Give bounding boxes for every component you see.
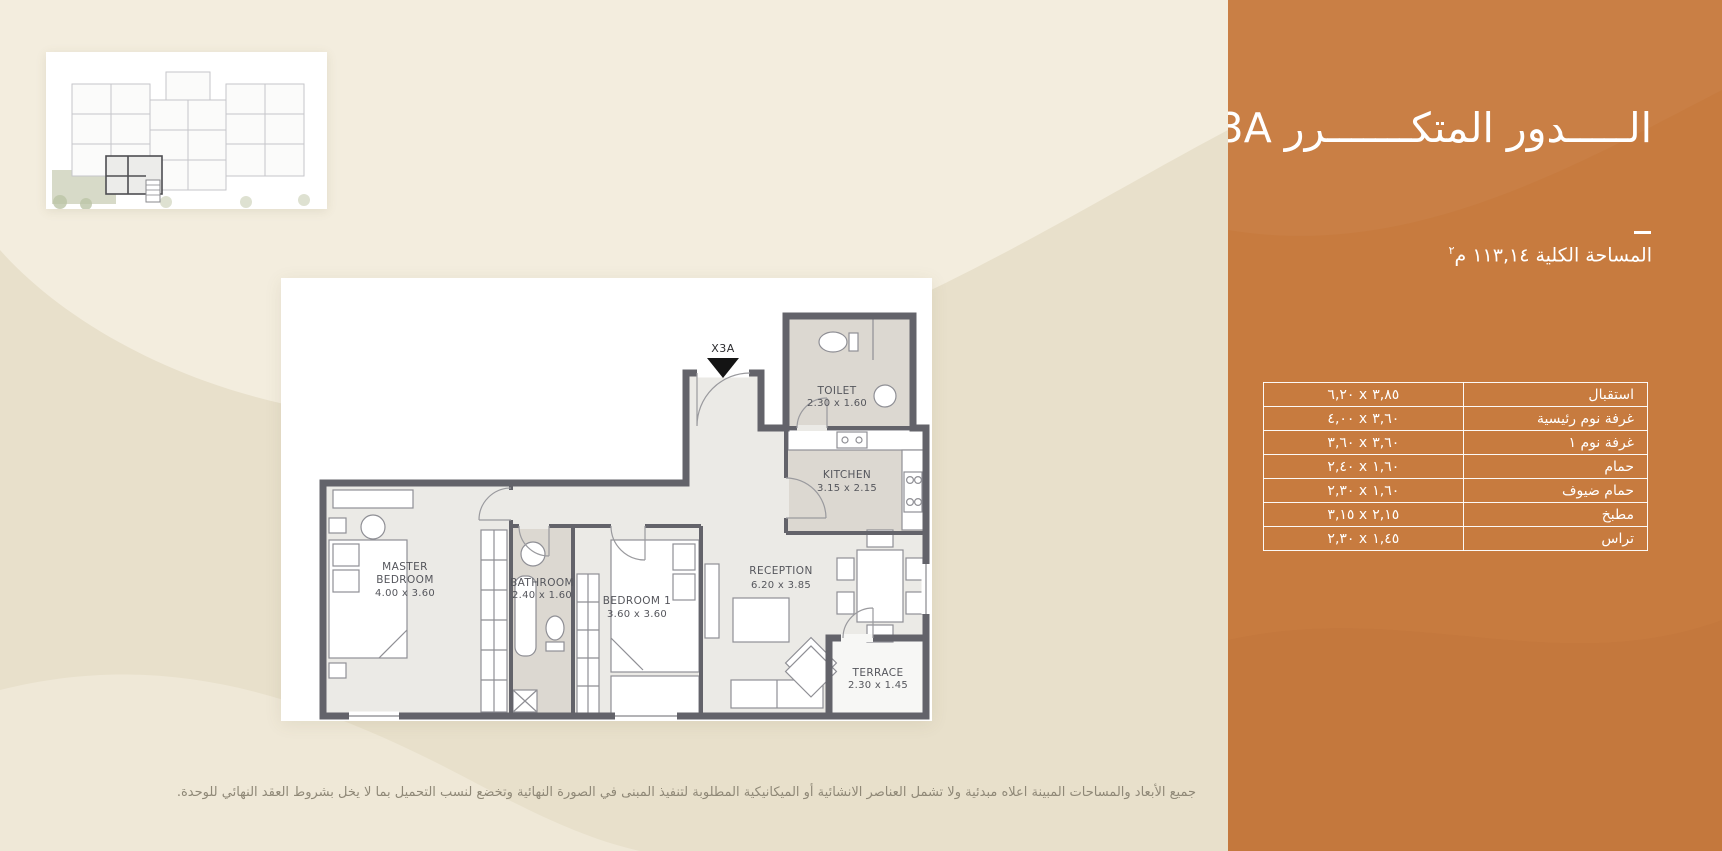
dims-bathroom: 2.40 x 1.60 <box>512 590 572 601</box>
dims-toilet: 2.30 x 1.60 <box>807 398 867 409</box>
floor-plan-drawing: X3A MASTER BEDROOM 4.00 x 3.60 BATHROOM … <box>281 278 932 721</box>
key-plan-drawing <box>46 52 327 209</box>
room-dims-cell: ٦,٢٠ x ٣,٨٥ <box>1264 383 1464 407</box>
table-row: حمام ضيوف ٢,٣٠ x ١,٦٠ <box>1264 479 1648 503</box>
dims-reception: 6.20 x 3.85 <box>751 580 811 591</box>
dims-terrace: 2.30 x 1.45 <box>848 680 908 691</box>
room-name-cell: غرفة نوم ١ <box>1463 431 1647 455</box>
dims-master: 4.00 x 3.60 <box>375 588 435 599</box>
room-dims-cell: ٢,٣٠ x ١,٦٠ <box>1264 479 1464 503</box>
dims-kitchen: 3.15 x 2.15 <box>817 483 877 494</box>
room-name-cell: غرفة نوم رئيسية <box>1463 407 1647 431</box>
table-row: استقبال ٦,٢٠ x ٣,٨٥ <box>1264 383 1648 407</box>
disclaimer-text: جميع الأبعاد والمساحات المبينة اعلاه مبد… <box>177 785 1196 800</box>
floor-plan: X3A MASTER BEDROOM 4.00 x 3.60 BATHROOM … <box>281 278 932 721</box>
room-dims-cell: ٢,٤٠ x ١,٦٠ <box>1264 455 1464 479</box>
room-dimensions-table: استقبال ٦,٢٠ x ٣,٨٥ غرفة نوم رئيسية ٤,٠٠… <box>1263 382 1648 551</box>
entry-unit-code: X3A <box>711 342 735 355</box>
room-name-cell: مطبخ <box>1463 503 1647 527</box>
label-toilet: TOILET <box>816 385 856 397</box>
total-area-text: المساحة الكلية ١١٣,١٤ م <box>1455 244 1652 266</box>
label-reception: RECEPTION <box>749 565 812 577</box>
label-terrace: TERRACE <box>852 667 904 679</box>
table-row: حمام ٢,٤٠ x ١,٦٠ <box>1264 455 1648 479</box>
room-dims-cell: ٢,٣٠ x ١,٤٥ <box>1264 527 1464 551</box>
room-dims-cell: ٤,٠٠ x ٣,٦٠ <box>1264 407 1464 431</box>
label-kitchen: KITCHEN <box>823 469 871 481</box>
label-master-2: BEDROOM <box>376 574 434 586</box>
label-bedroom1: BEDROOM 1 <box>603 595 671 607</box>
table-row: مطبخ ٣,١٥ x ٢,١٥ <box>1264 503 1648 527</box>
label-bathroom: BATHROOM <box>510 577 574 589</box>
room-name-cell: حمام <box>1463 455 1647 479</box>
total-area: المساحة الكلية ١١٣,١٤ م٢ <box>1449 244 1652 266</box>
title-dash <box>1634 231 1651 234</box>
dims-bedroom1: 3.60 x 3.60 <box>607 609 667 620</box>
table-row: غرفة نوم ١ ٣,٦٠ x ٣,٦٠ <box>1264 431 1648 455</box>
room-name-cell: حمام ضيوف <box>1463 479 1647 503</box>
room-name-cell: استقبال <box>1463 383 1647 407</box>
brochure-page: { "page": { "bg_base": "#e8e0cb", "bg_li… <box>0 0 1722 851</box>
room-name-cell: تراس <box>1463 527 1647 551</box>
info-sidebar: الـــــدور المتكـــــــرر X3A المساحة ال… <box>1228 0 1722 851</box>
key-plan-thumbnail <box>46 52 327 209</box>
page-title: الـــــدور المتكـــــــرر X3A <box>1228 104 1652 152</box>
room-dims-cell: ٣,٦٠ x ٣,٦٠ <box>1264 431 1464 455</box>
table-row: غرفة نوم رئيسية ٤,٠٠ x ٣,٦٠ <box>1264 407 1648 431</box>
table-row: تراس ٢,٣٠ x ١,٤٥ <box>1264 527 1648 551</box>
label-master-1: MASTER <box>382 561 428 573</box>
room-dims-cell: ٣,١٥ x ٢,١٥ <box>1264 503 1464 527</box>
